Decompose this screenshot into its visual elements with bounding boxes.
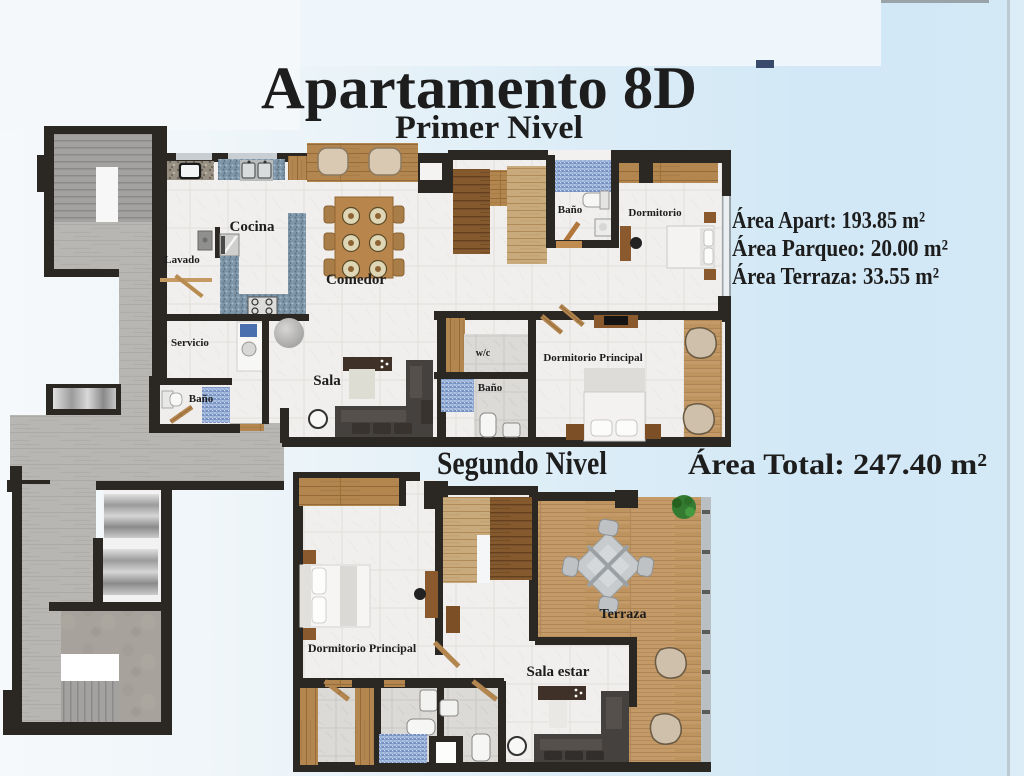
- svg-text:Área Parqueo: 20.00 m²: Área Parqueo: 20.00 m²: [732, 236, 948, 262]
- svg-text:Servicio: Servicio: [171, 337, 209, 349]
- svg-text:Dormitorio Principal: Dormitorio Principal: [308, 641, 417, 655]
- svg-text:Dormitorio Principal: Dormitorio Principal: [543, 352, 642, 364]
- svg-text:Área Apart: 193.85 m²: Área Apart: 193.85 m²: [732, 208, 925, 234]
- svg-text:Terraza: Terraza: [600, 607, 647, 622]
- svg-text:Baño: Baño: [478, 382, 503, 394]
- svg-text:Área Total: 247.40 m²: Área Total: 247.40 m²: [688, 448, 987, 481]
- svg-text:Sala estar: Sala estar: [527, 664, 590, 680]
- svg-text:Sala: Sala: [313, 373, 341, 389]
- svg-text:Segundo Nivel: Segundo Nivel: [437, 446, 607, 482]
- svg-text:Comedor: Comedor: [326, 272, 386, 288]
- svg-text:Baño: Baño: [558, 204, 583, 216]
- svg-text:Primer Nivel: Primer Nivel: [395, 110, 583, 146]
- svg-text:w/c: w/c: [476, 348, 491, 359]
- svg-text:Baño: Baño: [189, 393, 214, 405]
- svg-text:Lavado: Lavado: [164, 254, 200, 266]
- svg-text:Dormitorio: Dormitorio: [628, 207, 682, 219]
- svg-text:Cocina: Cocina: [230, 219, 276, 235]
- svg-text:Área Terraza: 33.55 m²: Área Terraza: 33.55 m²: [732, 264, 939, 290]
